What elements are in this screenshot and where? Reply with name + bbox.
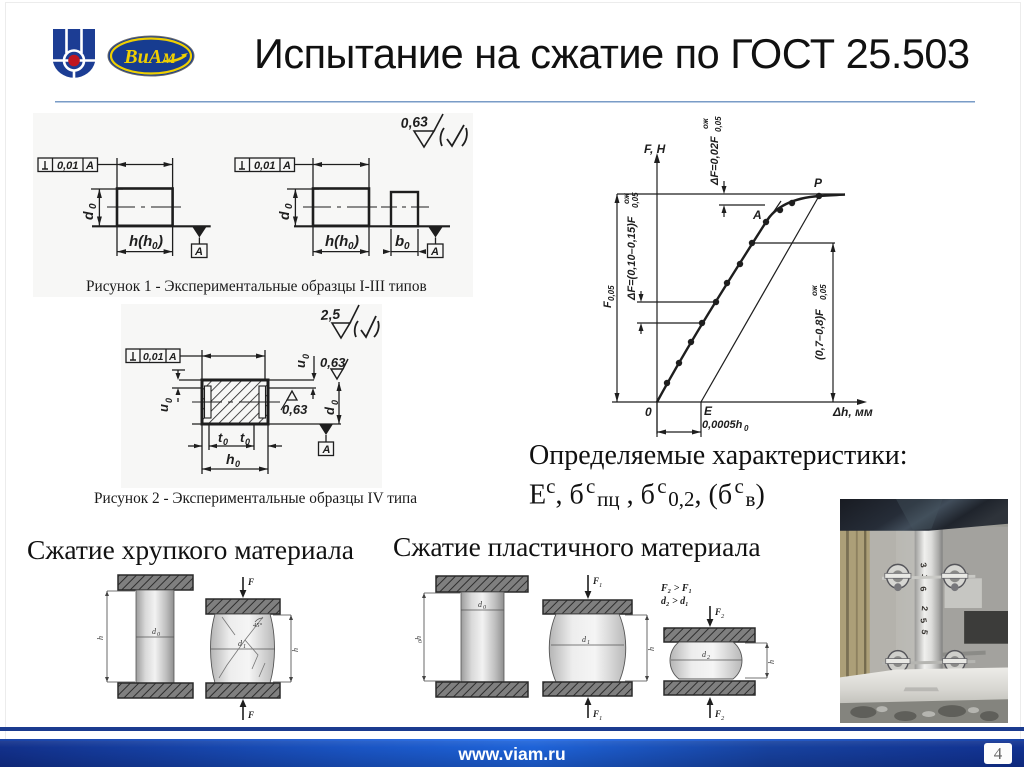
svg-text:d₂ > d₁: d₂ > d₁ — [661, 596, 689, 607]
svg-text:0: 0 — [744, 424, 749, 433]
svg-text:h: h — [415, 636, 423, 640]
svg-text:0: 0 — [483, 605, 486, 611]
svg-text:0: 0 — [284, 203, 295, 209]
svg-text:0: 0 — [645, 405, 652, 419]
svg-text:A: A — [752, 208, 762, 222]
svg-text:0,01: 0,01 — [143, 351, 164, 363]
svg-text:0: 0 — [88, 203, 99, 209]
svg-text:1: 1 — [599, 715, 602, 722]
svg-text:h(h: h(h — [325, 233, 348, 250]
svg-text:d: d — [322, 406, 337, 415]
svg-text:): ) — [156, 233, 163, 250]
svg-text:2,5: 2,5 — [319, 306, 341, 323]
svg-text:Δh, мм: Δh, мм — [832, 405, 873, 419]
svg-text:A: A — [282, 160, 291, 172]
svg-text:0: 0 — [418, 640, 424, 643]
svg-text:0: 0 — [330, 400, 340, 405]
svg-text:h: h — [96, 636, 105, 640]
svg-text:ож: ож — [622, 192, 631, 204]
svg-text:1: 1 — [243, 644, 246, 650]
svg-text:u: u — [293, 360, 308, 368]
svg-text:F₂ > F₁: F₂ > F₁ — [660, 583, 692, 594]
svg-text:h: h — [647, 647, 656, 651]
svg-text:2: 2 — [721, 715, 725, 722]
svg-text:1: 1 — [599, 582, 602, 589]
svg-text:ΔF=0,02F: ΔF=0,02F — [709, 136, 721, 186]
svg-text:h(h: h(h — [129, 233, 152, 250]
svg-text:0,63: 0,63 — [400, 113, 429, 131]
svg-text:F: F — [602, 301, 614, 308]
svg-text:(0,7–0,8)F: (0,7–0,8)F — [814, 309, 826, 360]
svg-text:A: A — [430, 246, 439, 258]
svg-text:0,01: 0,01 — [254, 160, 275, 172]
svg-text:d: d — [276, 211, 292, 220]
svg-text:A: A — [85, 160, 94, 172]
svg-text:u: u — [156, 404, 171, 412]
svg-text:ож: ож — [810, 284, 819, 296]
svg-text:h: h — [226, 451, 235, 467]
svg-text:d: d — [80, 211, 96, 220]
svg-text:0,63: 0,63 — [320, 355, 346, 370]
svg-text:2: 2 — [721, 613, 725, 620]
svg-text:0: 0 — [245, 437, 250, 447]
svg-text:A: A — [194, 246, 203, 258]
svg-text:0,63: 0,63 — [282, 402, 308, 417]
svg-text:b: b — [395, 233, 404, 250]
svg-text:h: h — [767, 660, 776, 664]
svg-text:0,0005h: 0,0005h — [702, 419, 743, 431]
svg-text:F: F — [714, 709, 721, 719]
svg-text:0,05: 0,05 — [819, 284, 828, 300]
svg-text:0: 0 — [223, 437, 228, 447]
svg-text:ож: ож — [701, 117, 710, 129]
svg-text:F: F — [247, 710, 254, 720]
svg-text:ΔF=(0,10–0,15)F: ΔF=(0,10–0,15)F — [626, 216, 638, 301]
svg-text:F: F — [247, 577, 254, 587]
svg-text:0: 0 — [164, 398, 174, 403]
svg-text:1: 1 — [587, 640, 590, 646]
svg-text:E: E — [704, 404, 713, 418]
svg-text:45°: 45° — [253, 622, 263, 629]
svg-text:A: A — [322, 444, 331, 456]
svg-text:0: 0 — [157, 632, 160, 638]
svg-text:A: A — [168, 351, 177, 363]
svg-text:F: F — [592, 576, 599, 586]
svg-text:h: h — [291, 648, 300, 652]
svg-text:F, H: F, H — [644, 142, 666, 156]
svg-text:F: F — [714, 607, 721, 617]
svg-text:0,05: 0,05 — [631, 192, 640, 208]
svg-text:0,05: 0,05 — [714, 116, 723, 132]
svg-text:F: F — [592, 709, 599, 719]
svg-text:0,01: 0,01 — [57, 160, 78, 172]
svg-text:0: 0 — [235, 459, 240, 469]
svg-text:ВиАм: ВиАм — [123, 46, 176, 68]
svg-text:0,05: 0,05 — [607, 285, 616, 301]
svg-text:): ) — [352, 233, 359, 250]
svg-text:P: P — [814, 176, 823, 190]
svg-text:0: 0 — [404, 241, 410, 252]
svg-text:2: 2 — [707, 655, 710, 661]
svg-text:0: 0 — [301, 354, 311, 359]
